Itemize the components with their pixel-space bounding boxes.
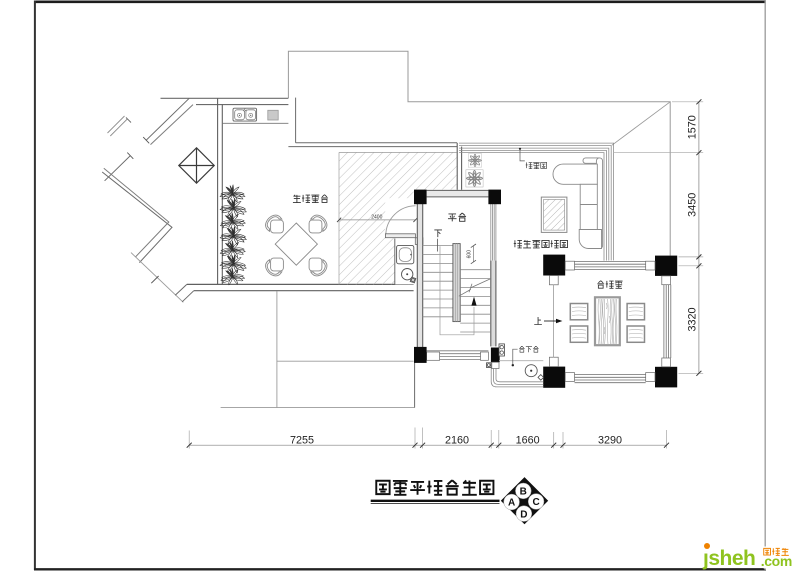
svg-text:1660: 1660 bbox=[516, 435, 540, 447]
svg-text:600: 600 bbox=[466, 250, 472, 259]
svg-text:3450: 3450 bbox=[686, 193, 698, 217]
svg-text:2160: 2160 bbox=[445, 435, 469, 447]
svg-text:C: C bbox=[532, 497, 539, 508]
svg-text:1570: 1570 bbox=[686, 115, 698, 139]
svg-text:B: B bbox=[520, 487, 527, 498]
svg-text:3320: 3320 bbox=[686, 307, 698, 331]
svg-text:3290: 3290 bbox=[598, 435, 622, 447]
svg-text:A: A bbox=[508, 498, 515, 509]
svg-text:D: D bbox=[520, 509, 527, 520]
svg-text:2400: 2400 bbox=[371, 215, 382, 221]
svg-text:7255: 7255 bbox=[290, 435, 314, 447]
